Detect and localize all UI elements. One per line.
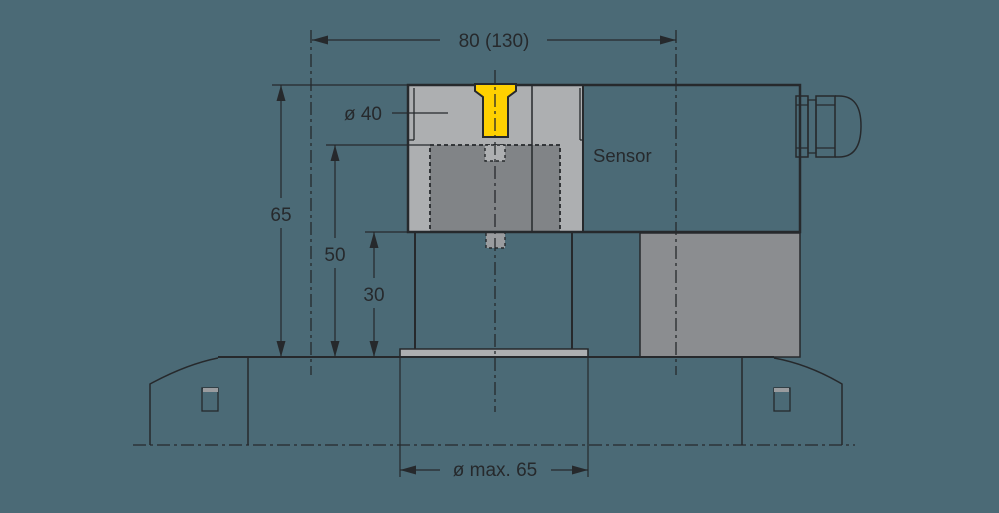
dim-label-column-height: 30 xyxy=(363,285,384,306)
spindle-pad xyxy=(400,349,588,357)
sensor-dimensional-drawing: 80 (130) 65 50 30 xyxy=(0,0,999,513)
dim-label-clamp-diameter: ø 40 xyxy=(344,104,382,125)
drawing-canvas: 80 (130) 65 50 30 xyxy=(0,0,999,513)
dim-label-max-diameter: ø max. 65 xyxy=(453,460,537,481)
dim-label-insert-height: 50 xyxy=(324,245,345,266)
mounting-block xyxy=(640,233,800,357)
dim-label-top-width: 80 (130) xyxy=(459,31,530,52)
dim-label-overall-height: 65 xyxy=(270,205,291,226)
sensor-label: Sensor xyxy=(593,145,652,166)
